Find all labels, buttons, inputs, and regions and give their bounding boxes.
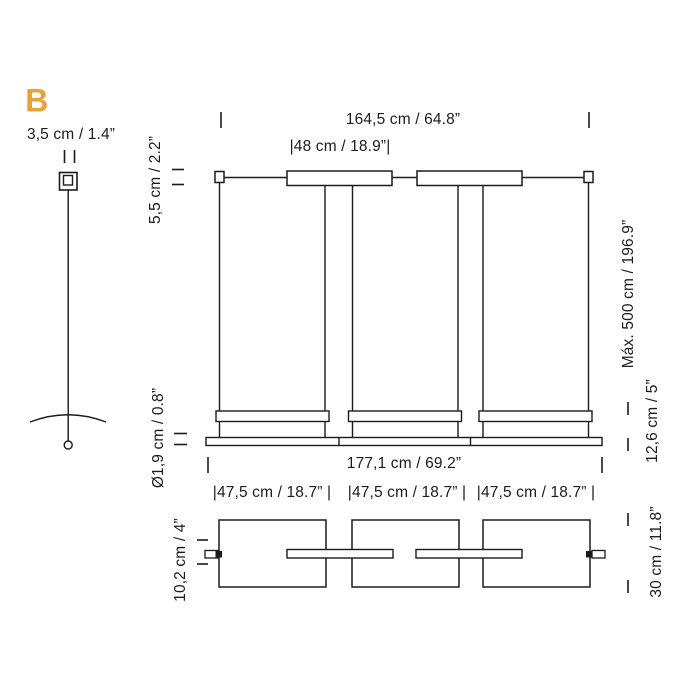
cable-end-stop (64, 441, 72, 449)
front-elevation-view (172, 112, 628, 473)
dim-canopy-height: 5,5 cm / 2.2” (147, 136, 165, 224)
diffuser-bands (216, 411, 592, 422)
ceiling-connector-inner (64, 176, 73, 186)
dim-shade-depth: 30 cm / 11.8” (648, 506, 666, 597)
dim-canopy-width: |48 cm / 18.9”| (290, 138, 391, 156)
end-hanger-left (215, 172, 224, 183)
cable-side-view (30, 150, 106, 449)
stem-diameter-ticks (174, 434, 187, 445)
dim-diffuser-height: 12,6 cm / 5” (644, 379, 662, 463)
dim-base-width: 177,1 cm / 69.2” (347, 455, 461, 473)
plan-view (197, 513, 628, 593)
dim-shade-width-right: |47,5 cm / 18.7” | (477, 484, 595, 502)
end-hanger-right (584, 172, 593, 183)
canopy-bar-left (287, 171, 392, 186)
dim-connector-width: 3,5 cm / 1.4” (27, 126, 115, 144)
dim-total-width: 164,5 cm / 64.8” (346, 111, 460, 129)
plan-end-joint-right (586, 551, 593, 558)
base-light-bar (206, 438, 602, 446)
dim-stem-diameter: Ø1,9 cm / 0.8” (150, 388, 168, 488)
canopy-bar-right (417, 171, 522, 186)
canopy-height-ticks (172, 170, 184, 185)
connector-width-ticks (65, 150, 75, 163)
dim-shade-width-center: |47,5 cm / 18.7” | (348, 484, 466, 502)
variant-label: B (25, 83, 49, 120)
dim-max-drop: Máx. 500 cm / 196.9” (620, 220, 638, 369)
dim-shade-width-left: |47,5 cm / 18.7” | (213, 484, 331, 502)
plan-end-joint-left (216, 551, 223, 558)
dimension-sheet: B 3,5 cm / 1.4” 164,5 cm / 64.8” |48 cm … (0, 0, 700, 700)
plan-end-cap-right (592, 551, 605, 559)
plan-shades (219, 520, 590, 587)
shade-edges (220, 183, 589, 439)
technical-line-drawing (0, 0, 700, 700)
dim-bar-depth: 10,2 cm / 4” (172, 518, 190, 602)
